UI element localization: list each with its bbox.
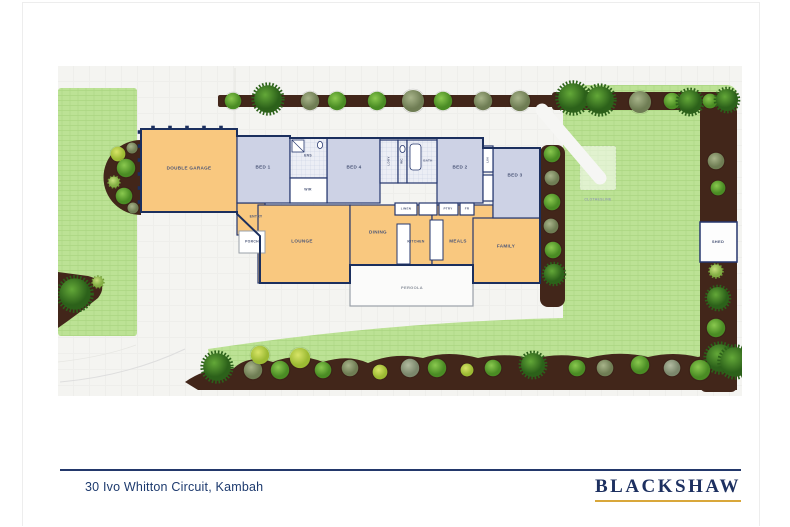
bush-icon xyxy=(631,356,649,374)
bush-icon xyxy=(108,176,119,187)
toilet-icon xyxy=(400,145,405,152)
bush-icon xyxy=(708,153,725,170)
room-garage xyxy=(141,129,237,212)
closet-fridge xyxy=(460,203,474,215)
tree-icon xyxy=(678,90,702,114)
bush-icon xyxy=(711,181,726,196)
porch xyxy=(239,231,265,253)
bush-icon xyxy=(664,360,681,377)
kitchen-bench-right xyxy=(430,220,443,260)
bush-icon xyxy=(315,362,332,379)
wall-pillar xyxy=(138,172,142,176)
room-bed3 xyxy=(493,148,540,218)
bush-icon xyxy=(597,360,614,377)
bush-icon xyxy=(271,361,289,379)
footer-divider xyxy=(60,469,741,471)
wall-pillar xyxy=(168,126,172,130)
blackshaw-logo: BLACKSHAW xyxy=(595,476,741,502)
bush-icon xyxy=(434,92,452,110)
bush-icon xyxy=(545,171,560,186)
room-family xyxy=(473,218,540,283)
wall-pillar xyxy=(151,126,155,130)
wall-pillar xyxy=(219,126,223,130)
room-bed4 xyxy=(327,138,380,203)
bush-icon xyxy=(116,188,133,205)
bathtub-icon xyxy=(410,144,421,170)
bush-icon xyxy=(127,202,138,213)
bush-icon xyxy=(328,92,346,110)
wall-pillar xyxy=(185,126,189,130)
bush-icon xyxy=(485,360,502,377)
bush-icon xyxy=(290,348,310,368)
bush-icon xyxy=(402,90,424,112)
room-bed1 xyxy=(237,136,290,203)
bush-icon xyxy=(92,276,103,287)
bush-icon xyxy=(126,142,137,153)
wall-pillar xyxy=(202,126,206,130)
shed xyxy=(700,222,737,262)
bush-icon xyxy=(225,93,242,110)
tree-icon xyxy=(558,83,587,112)
closet-linen-2 xyxy=(483,175,493,201)
bush-icon xyxy=(707,287,729,309)
bush-icon xyxy=(629,91,651,113)
wall-pillar xyxy=(138,186,142,190)
bush-icon xyxy=(690,360,710,380)
floorplan-page: { "footer": { "address": "30 Ivo Whitton… xyxy=(0,0,790,527)
kitchen-bench-left xyxy=(397,224,410,264)
wall-pillar xyxy=(138,130,142,134)
bush-icon xyxy=(710,265,723,278)
closet-linen-1 xyxy=(483,146,493,172)
tree-icon xyxy=(59,278,90,309)
bush-icon xyxy=(401,359,419,377)
bush-icon xyxy=(544,146,561,163)
toilet-icon xyxy=(317,141,322,148)
bush-icon xyxy=(342,360,359,377)
room-laundry xyxy=(380,140,398,183)
site-plan: DOUBLE GARAGE BED 1 ENS WIR BED 4 LDRY W… xyxy=(58,66,742,396)
room-lounge xyxy=(258,205,350,283)
tree-icon xyxy=(254,85,282,113)
bush-icon xyxy=(544,264,564,284)
bush-icon xyxy=(544,194,561,211)
bush-icon xyxy=(544,219,559,234)
site-plan-graphic xyxy=(58,66,742,396)
bush-icon xyxy=(474,92,492,110)
bush-icon xyxy=(707,319,725,337)
closet-linen-row xyxy=(395,203,417,215)
bush-icon xyxy=(368,92,386,110)
room-bed2 xyxy=(437,138,483,203)
room-wir xyxy=(290,178,327,203)
tree-icon xyxy=(586,86,614,114)
bush-icon xyxy=(111,147,126,162)
wall-pillar xyxy=(138,200,142,204)
bush-icon xyxy=(373,365,388,380)
closet-pantry xyxy=(439,203,458,215)
closet-cupboard xyxy=(419,203,437,215)
pergola xyxy=(350,265,473,306)
bush-icon xyxy=(428,359,446,377)
bush-icon xyxy=(117,159,135,177)
bush-icon xyxy=(716,89,738,111)
bush-icon xyxy=(461,364,474,377)
bush-icon xyxy=(545,242,562,259)
tree-icon xyxy=(521,353,545,377)
tree-icon xyxy=(203,353,231,381)
bush-icon xyxy=(569,360,586,377)
property-address: 30 Ivo Whitton Circuit, Kambah xyxy=(85,480,263,494)
bush-icon xyxy=(251,346,269,364)
bush-icon xyxy=(510,91,530,111)
wall-pillar xyxy=(138,158,142,162)
bush-icon xyxy=(301,92,319,110)
